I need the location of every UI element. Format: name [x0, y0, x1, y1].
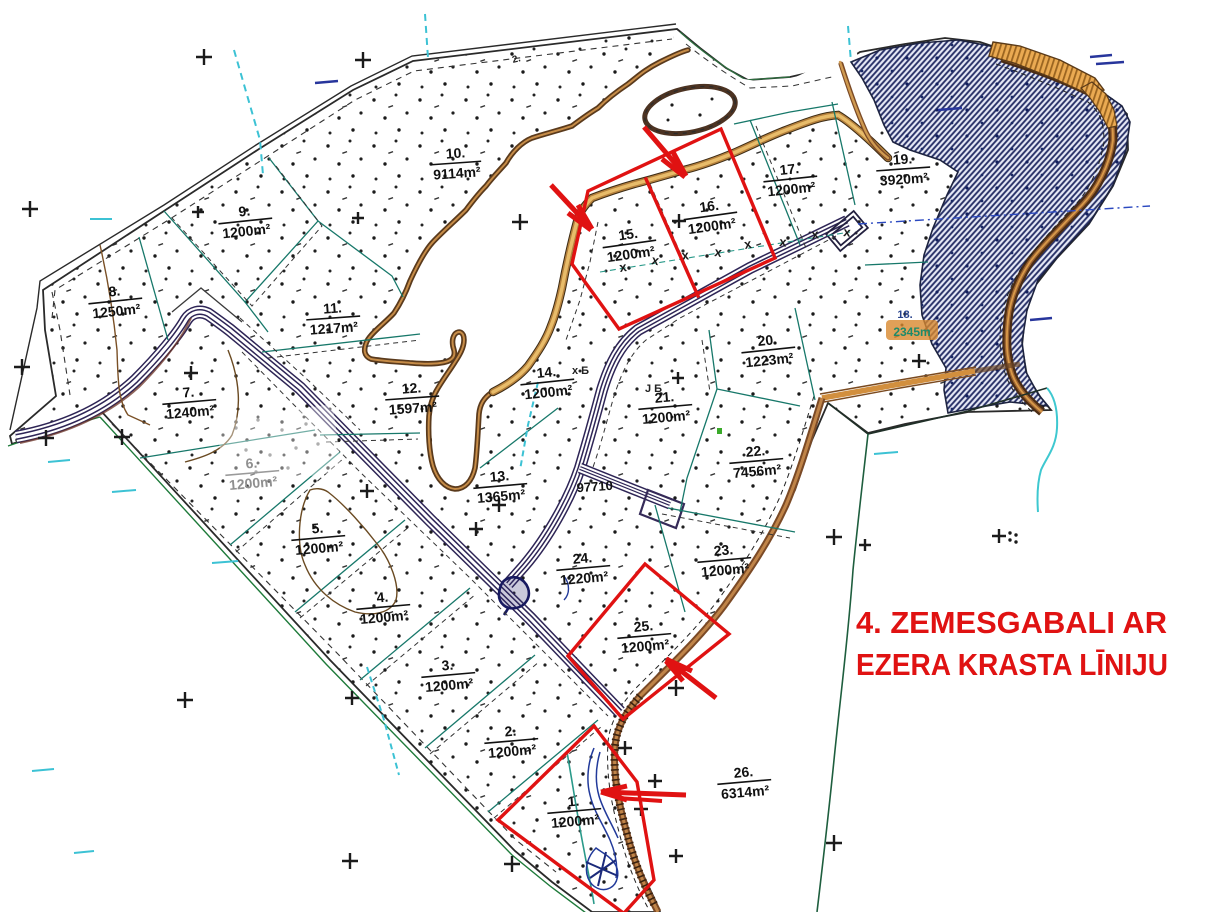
svg-text:17.: 17.: [779, 160, 800, 178]
svg-text:14.: 14.: [536, 363, 557, 381]
svg-text:4.: 4.: [376, 589, 389, 606]
svg-text:8.: 8.: [108, 282, 121, 299]
svg-text:12.: 12.: [401, 379, 422, 396]
svg-text:3920m²: 3920m²: [879, 169, 929, 188]
svg-text:2.: 2.: [504, 723, 517, 740]
svg-text:25.: 25.: [633, 617, 654, 635]
svg-text:23.: 23.: [713, 541, 734, 559]
svg-text:9.: 9.: [238, 202, 251, 219]
svg-text:EZERA KRASTA LĪNIJU: EZERA KRASTA LĪNIJU: [856, 647, 1168, 682]
svg-text:11.: 11.: [323, 299, 343, 316]
svg-text:20.: 20.: [757, 331, 778, 349]
svg-text:26.: 26.: [733, 763, 754, 781]
svg-text:10.: 10.: [445, 144, 466, 161]
svg-text:1597m²: 1597m²: [388, 398, 438, 417]
svg-text:4. ZEMESGABALI AR: 4. ZEMESGABALI AR: [856, 605, 1167, 640]
svg-text:6.: 6.: [245, 455, 258, 472]
svg-text:13.: 13.: [489, 467, 510, 485]
svg-text:x Б: x Б: [572, 365, 589, 377]
svg-text:18.: 18.: [897, 309, 912, 321]
svg-text:1217m²: 1217m²: [309, 318, 359, 337]
svg-text:15.: 15.: [617, 225, 639, 244]
svg-text:J Б: J Б: [645, 383, 662, 395]
svg-text:3.: 3.: [441, 657, 454, 674]
svg-text:2345m: 2345m: [893, 325, 930, 339]
svg-text:19.: 19.: [892, 150, 913, 167]
svg-text:9114m²: 9114m²: [433, 163, 482, 182]
svg-text:22.: 22.: [745, 442, 766, 460]
svg-text:5.: 5.: [311, 520, 324, 537]
svg-text:24.: 24.: [572, 549, 593, 567]
svg-text:16.: 16.: [698, 197, 720, 216]
svg-text:7.: 7.: [182, 384, 195, 401]
svg-text:1.: 1.: [567, 793, 580, 810]
svg-text:97710: 97710: [576, 478, 613, 495]
